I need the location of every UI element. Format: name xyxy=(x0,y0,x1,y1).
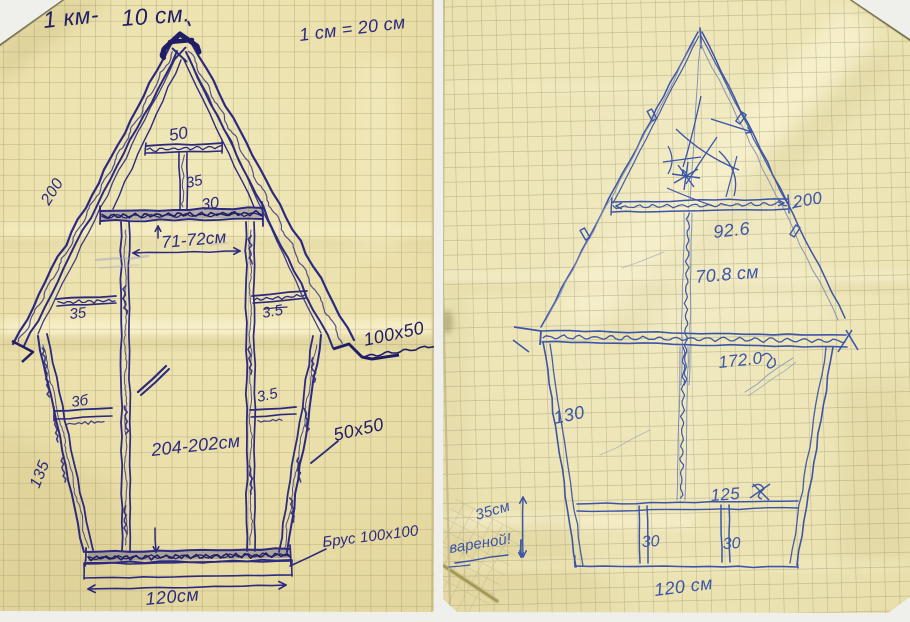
svg-text:3б: 3б xyxy=(70,392,90,411)
svg-text:92.6: 92.6 xyxy=(712,218,751,242)
svg-text:10 см.: 10 см. xyxy=(121,0,191,31)
svg-text:30: 30 xyxy=(641,533,660,551)
svg-text:30: 30 xyxy=(722,535,741,553)
svg-text:30: 30 xyxy=(200,195,220,214)
svg-text:50: 50 xyxy=(167,123,189,145)
svg-text:125: 125 xyxy=(710,484,741,505)
svg-text:35: 35 xyxy=(69,304,88,323)
